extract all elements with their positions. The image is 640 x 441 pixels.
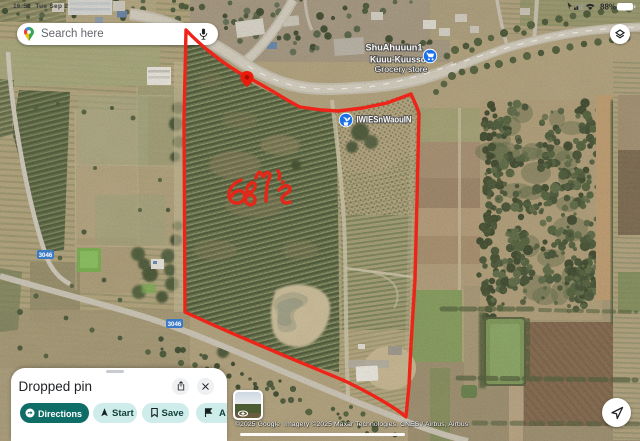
svg-text:Kuuu-Kuusso: Kuuu-Kuusso	[370, 55, 427, 65]
svg-text:IWIESnWaouIN: IWIESnWaouIN	[357, 115, 412, 125]
svg-text:Grocery store: Grocery store	[375, 65, 429, 74]
svg-text:3046: 3046	[39, 252, 53, 259]
svg-text:88%: 88%	[600, 3, 616, 12]
svg-text:ShuAhuuun1: ShuAhuuun1	[366, 43, 423, 53]
svg-text:3046: 3046	[168, 321, 182, 328]
